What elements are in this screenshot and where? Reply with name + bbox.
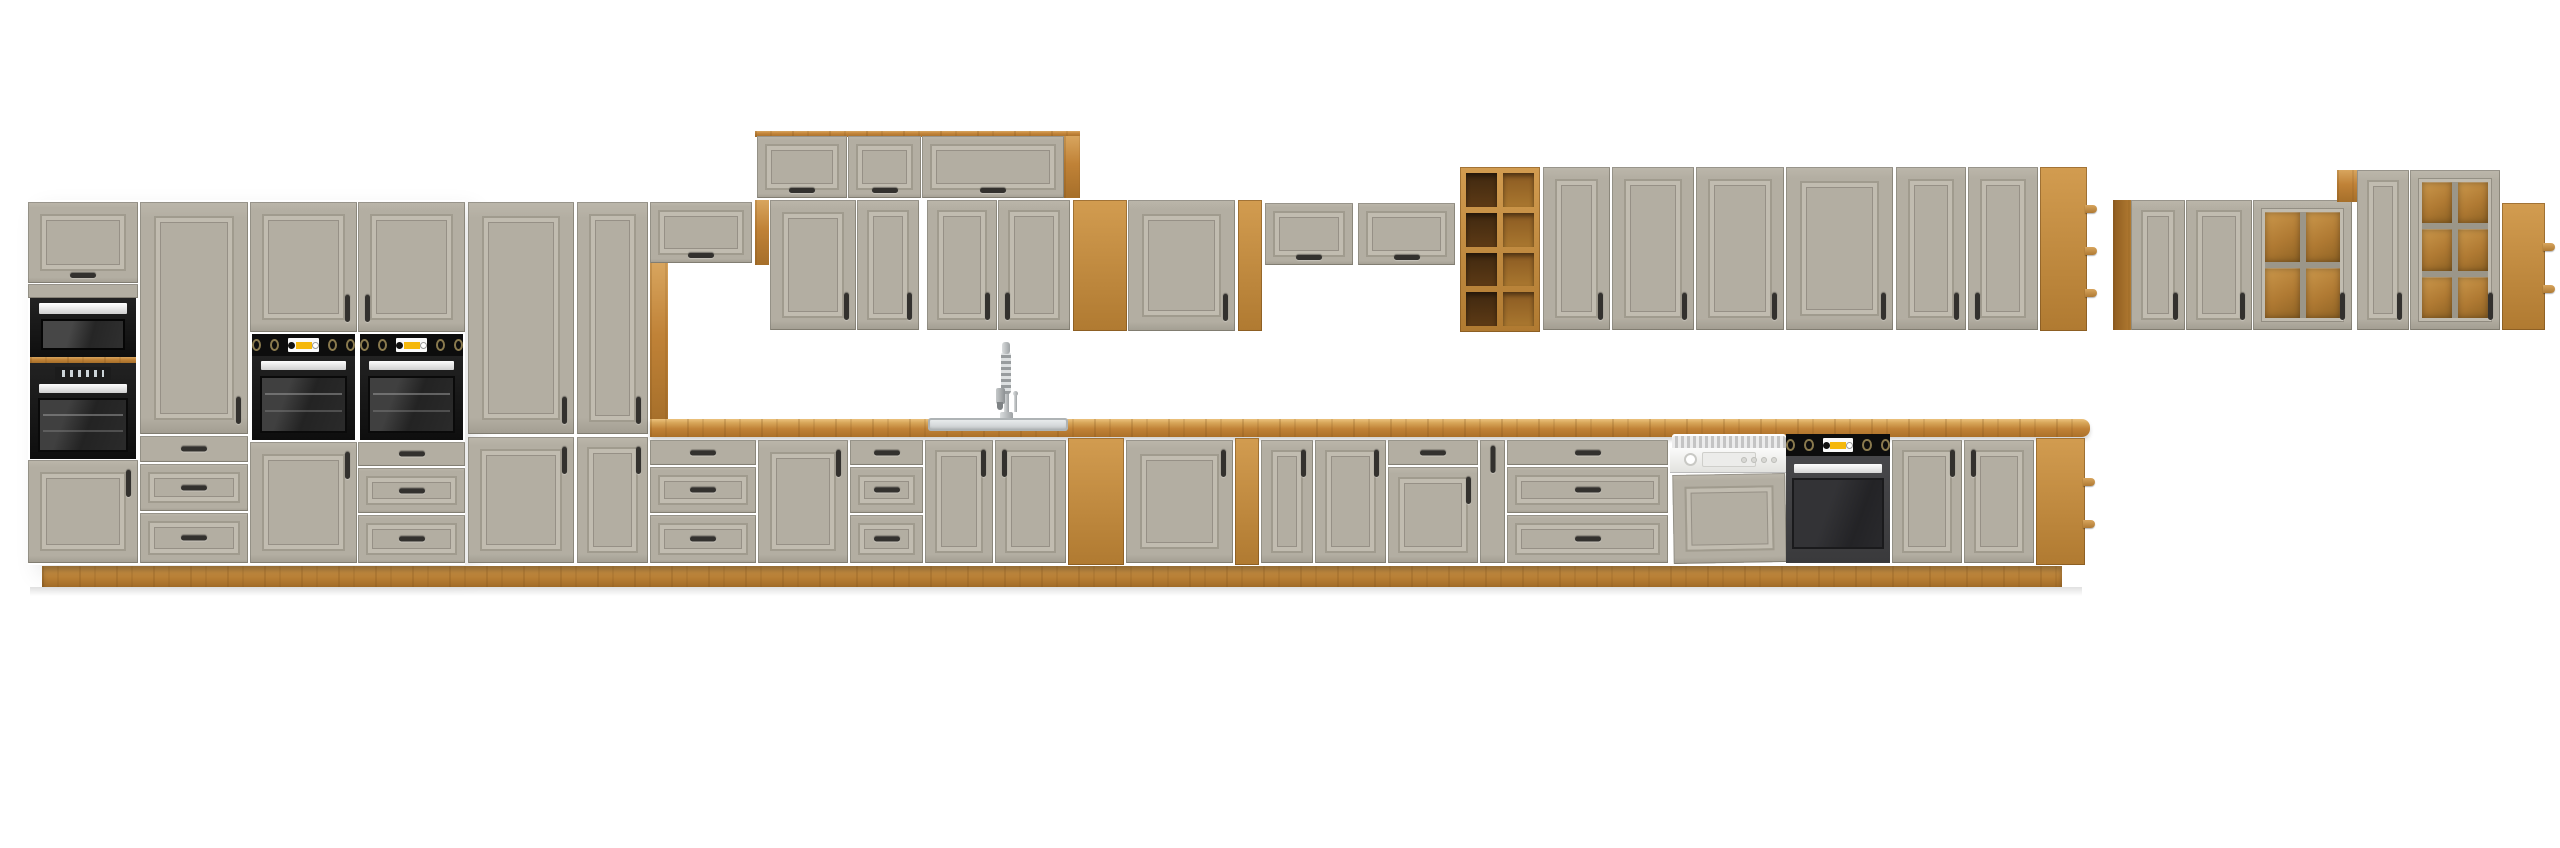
wall-flap-cabinet-1	[650, 202, 752, 263]
dishwasher-furniture-panel	[1672, 473, 1787, 564]
oven-housing-2-top-door	[358, 202, 465, 332]
oak-pillar	[650, 263, 668, 424]
base-door-1	[758, 440, 848, 563]
wall-row-door-4	[1786, 167, 1893, 330]
dishwasher-control-panel	[1670, 448, 1787, 473]
built-in-oven-tall-2	[360, 356, 463, 440]
tall-wall-door-oak-side	[2337, 170, 2357, 202]
glass-cabinet-2x3	[2410, 170, 2500, 330]
wall-open-shelf-column	[1238, 200, 1262, 331]
wall-top-flap-3	[922, 136, 1064, 198]
faucet	[990, 342, 1024, 422]
tall-unit-drawer-2	[140, 464, 248, 511]
base-drawer-door-unit-drawer	[1388, 440, 1478, 465]
base-door-4	[1892, 440, 1962, 563]
sink-cabinet-door-left	[925, 440, 993, 563]
sink	[928, 418, 1068, 431]
base-drawer-unit-1-d3	[650, 515, 756, 563]
oven-housing-2-drawer-2	[358, 468, 465, 513]
oven-housing-1-lower-door	[250, 442, 357, 563]
built-in-microwave	[30, 298, 136, 357]
base-shelf-column	[1235, 438, 1259, 565]
base-drawer-unit-2-d1	[850, 440, 923, 465]
wall-oak-end-strip	[755, 200, 769, 265]
wall-top-flap-2	[848, 136, 921, 198]
wall-door-over-sink-2	[857, 200, 919, 330]
base-end-shelf	[2036, 438, 2085, 565]
built-in-oven-base	[1786, 456, 1890, 563]
right-end-shelf	[2502, 203, 2545, 330]
base-filler-door	[1480, 440, 1505, 563]
tall-flap-cabinet	[28, 202, 138, 283]
wall-row-door-5	[1896, 167, 1966, 330]
oven-knob-panel-2	[360, 334, 463, 356]
wall-end-shelf	[2040, 167, 2087, 331]
pantry-narrow-top-door	[577, 202, 648, 434]
oven-housing-1-top-door	[250, 202, 357, 332]
base-drawer-unit-1-d1	[650, 440, 756, 465]
base-door-wide	[1126, 440, 1233, 563]
wall-top-flap-1	[757, 136, 847, 198]
base-oven-knob-panel	[1786, 434, 1890, 456]
right-wall-door-1	[2131, 200, 2185, 330]
plinth	[42, 566, 2062, 587]
base-drawer-unit-3-d3	[1507, 515, 1668, 563]
wall-door-over-sink-3	[927, 200, 997, 330]
pantry-narrow-bottom-door	[577, 437, 648, 563]
pantry-wide-top-door	[468, 202, 574, 434]
tall-unit-filler-strip	[28, 284, 138, 298]
tall-wall-door	[2357, 170, 2409, 330]
wall-flap-cabinet-3	[1358, 203, 1455, 265]
pantry-wide-bottom-door	[468, 437, 574, 563]
oak-cube-shelf	[1460, 167, 1540, 332]
base-door-2	[1261, 440, 1313, 563]
sink-cabinet-door-right	[995, 440, 1066, 563]
wall-flap-cabinet-2	[1265, 203, 1353, 265]
base-drawer-door-unit-door	[1388, 467, 1478, 563]
dishwasher-top-strip	[1672, 434, 1786, 448]
wall-row-door-1	[1543, 167, 1610, 330]
wall-door-over-sink-4	[998, 200, 1070, 330]
oven-knob-panel-1	[252, 334, 355, 356]
glass-cabinet-2x2	[2253, 200, 2352, 330]
built-in-oven-upper-left	[30, 363, 136, 459]
base-door-5	[1964, 440, 2034, 563]
right-wall-door-2	[2186, 200, 2252, 330]
floor-shadow	[30, 587, 2082, 596]
base-drawer-unit-2-d2	[850, 467, 923, 513]
tall-unit-lower-door-1	[28, 460, 138, 563]
wall-row-door-6	[1968, 167, 2038, 330]
oven-housing-2-drawer-1	[358, 442, 465, 466]
wall-door-over-sink-1	[770, 200, 856, 330]
tall-unit-drawer-1	[140, 436, 248, 462]
kitchen-set-render	[0, 0, 2560, 848]
wall-top-oak-side	[1064, 136, 1080, 198]
base-open-shelf	[1068, 438, 1124, 565]
wall-door-wide	[1128, 200, 1235, 331]
tall-unit-drawer-3	[140, 513, 248, 563]
built-in-oven-tall-1	[252, 356, 355, 440]
oven-housing-2-drawer-3	[358, 515, 465, 563]
tall-door-3-drawer-unit-door	[140, 202, 248, 434]
wall-row-door-3	[1696, 167, 1784, 330]
base-drawer-unit-1-d2	[650, 467, 756, 513]
wall-row-door-2	[1612, 167, 1694, 330]
base-drawer-unit-3-d2	[1507, 467, 1668, 513]
base-door-3	[1315, 440, 1386, 563]
base-drawer-unit-3-d1	[1507, 440, 1668, 465]
base-drawer-unit-2-d3	[850, 515, 923, 563]
wall-open-shelf-3	[1073, 200, 1127, 331]
right-group-oak-side	[2113, 200, 2131, 330]
